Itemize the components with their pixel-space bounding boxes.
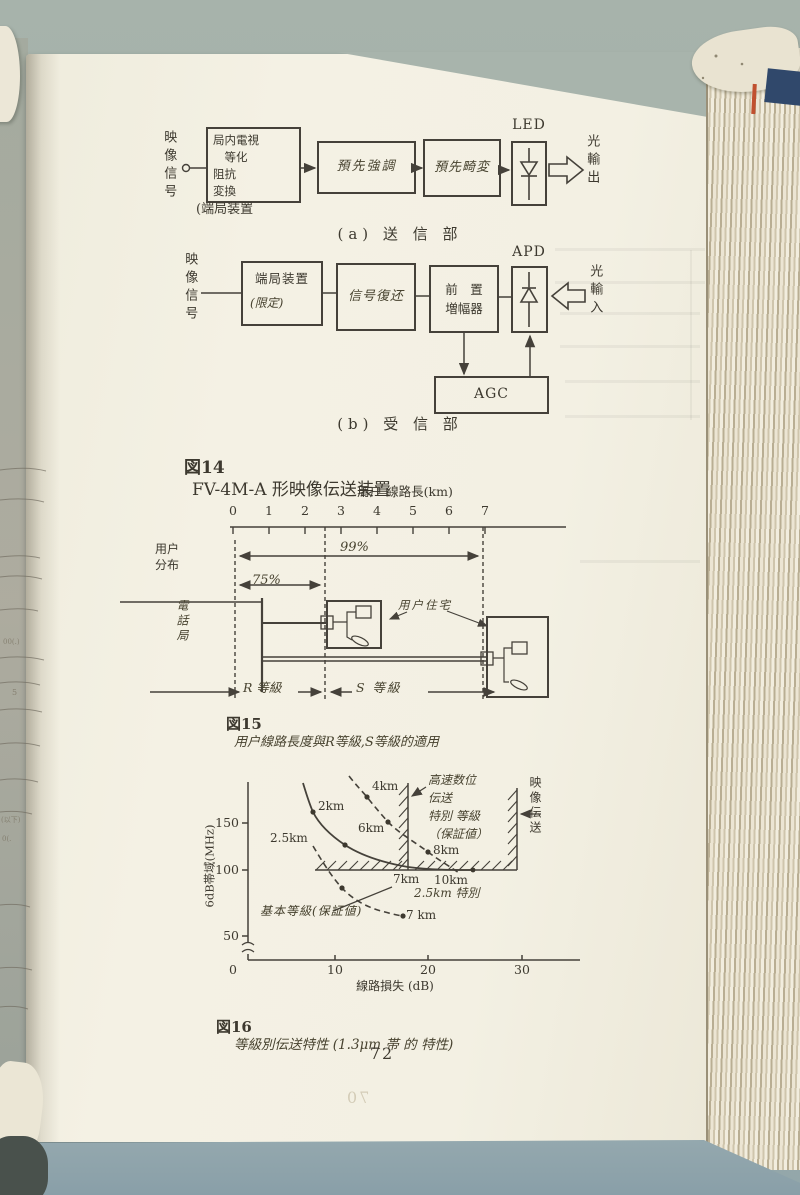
fig16-point-2p5km-special: 2.5km 特別 <box>414 886 480 901</box>
fig16-point-2km: 2km <box>318 799 344 814</box>
rx-box3-text: 前 置 増幅器 <box>430 266 498 332</box>
fig15-axis-title: 用户 線路長(km) <box>300 484 510 500</box>
fig16-video-region-label: 映像伝送 <box>527 776 542 836</box>
bleed-through-line <box>555 248 705 251</box>
fig14b-caption: (b) 受 信 部 <box>300 414 500 434</box>
fig16-ytick-50: 50 <box>213 928 239 944</box>
fig16-ytick-150: 150 <box>213 815 239 831</box>
bottom-left-shadow <box>0 1136 48 1195</box>
fig15-caption-text: 用户線路長度與R等級,S等級的適用 <box>234 735 439 750</box>
fig16-highspeed-annotation: 高速数位 伝送 特別 等級 （保証値） <box>428 771 488 843</box>
fig15-house-label: 用户住宅 <box>398 598 452 612</box>
fig16-point-8km: 8km <box>433 843 459 858</box>
fig16-caption-number: 図16 <box>216 1018 252 1036</box>
bleed-through-line <box>565 380 700 383</box>
gutter-shadow <box>26 54 60 1142</box>
fig15-75pct-label: 75% <box>252 573 281 589</box>
agc-label: AGC <box>435 377 548 413</box>
fig16-point-7km-basic: 7 km <box>406 908 436 923</box>
bleed-through-line <box>560 312 700 315</box>
rx-box1-line2: (限定) <box>250 296 283 311</box>
rx-light-input-label: 光輸入 <box>586 264 602 318</box>
fig15-tick-0: 0 <box>226 503 240 519</box>
fig16-xtick-20: 20 <box>418 962 438 978</box>
fig15-tick-5: 5 <box>406 503 420 519</box>
fig16-xtick-0: 0 <box>226 962 240 978</box>
fig16-caption-text: 等級別伝送特性 (1.3μm 帯 的 特性) <box>234 1037 453 1053</box>
book-spine-edge <box>0 38 28 1164</box>
fig15-office-label: 電話局 <box>174 599 189 644</box>
bleed-through-line <box>580 560 700 563</box>
fig15-99pct-label: 99% <box>340 540 369 556</box>
fig15-caption-number: 図15 <box>226 715 262 733</box>
fig15-tick-6: 6 <box>442 503 456 519</box>
apd-label: APD <box>505 244 553 262</box>
page-number: 72 <box>352 1044 412 1064</box>
edge-fragment: 00(.) <box>3 638 20 646</box>
tx-box2-text: 預先強調 <box>318 142 415 193</box>
book-fore-edge-pages <box>706 48 800 1170</box>
fig16-point-7km: 7km <box>393 872 419 887</box>
edge-fragment: (以下) <box>1 815 20 825</box>
fig15-caption: 図15 用户線路長度與R等級,S等級的適用 <box>226 699 439 751</box>
bleed-through-line <box>690 250 692 420</box>
fig15-tick-2: 2 <box>298 503 312 519</box>
fig15-distribution-label: 用户 分布 <box>155 541 179 573</box>
fig16-x-axis-label: 線路損失 (dB) <box>325 978 465 994</box>
bleed-through-page-number: 70 <box>345 1088 369 1107</box>
book-cover-corner <box>764 68 800 106</box>
background-band-bottom <box>0 1140 800 1195</box>
fig16-basic-grade-annotation: 基本等級(保証値) <box>260 904 362 919</box>
fig15-tick-1: 1 <box>262 503 276 519</box>
fig16-point-2p5km: 2.5km <box>270 831 308 846</box>
rx-input-label: 映像信号 <box>181 252 197 324</box>
bleed-through-line <box>555 281 705 284</box>
fig16-point-6km: 6km <box>358 821 384 836</box>
fig16-caption: 図16 等級別伝送特性 (1.3μm 帯 的 特性) <box>216 1001 453 1054</box>
fig14a-caption: (a) 送 信 部 <box>300 224 500 244</box>
fig15-tick-4: 4 <box>370 503 384 519</box>
edge-fragment: 0(. <box>2 835 11 843</box>
fig14-caption-number: 図14 <box>184 458 225 478</box>
bleed-through-line <box>560 345 700 348</box>
bleed-through-line <box>565 415 700 418</box>
tx-input-label: 映像信号 <box>160 130 176 202</box>
rx-box1-line1: 端局装置 <box>246 270 318 288</box>
fig16-xtick-30: 30 <box>512 962 532 978</box>
fig16-ytick-100: 100 <box>213 862 239 878</box>
tx-box3-text: 預先畸変 <box>424 140 500 196</box>
fig15-r-grade-label: R 等級 <box>243 680 281 696</box>
fig15-tick-7: 7 <box>478 503 492 519</box>
fig15-tick-3: 3 <box>334 503 348 519</box>
scanned-book-page: 映像信号 局内電視 等化 阻抗 変換 (端局装置 預先強調 預先畸変 LED 光… <box>0 0 800 1195</box>
fig15-s-grade-label: S 等級 <box>356 680 402 696</box>
fig16-xtick-10: 10 <box>325 962 345 978</box>
led-label: LED <box>506 117 552 135</box>
tx-output-label: 光輸出 <box>583 134 599 188</box>
fig16-point-4km: 4km <box>372 779 398 794</box>
rx-box2-text: 信号復还 <box>337 264 415 330</box>
tx-box1-sublabel: (端局装置 <box>196 202 253 218</box>
tx-box1-text: 局内電視 等化 阻抗 変換 <box>213 132 297 200</box>
edge-fragment: 5 <box>12 688 17 697</box>
